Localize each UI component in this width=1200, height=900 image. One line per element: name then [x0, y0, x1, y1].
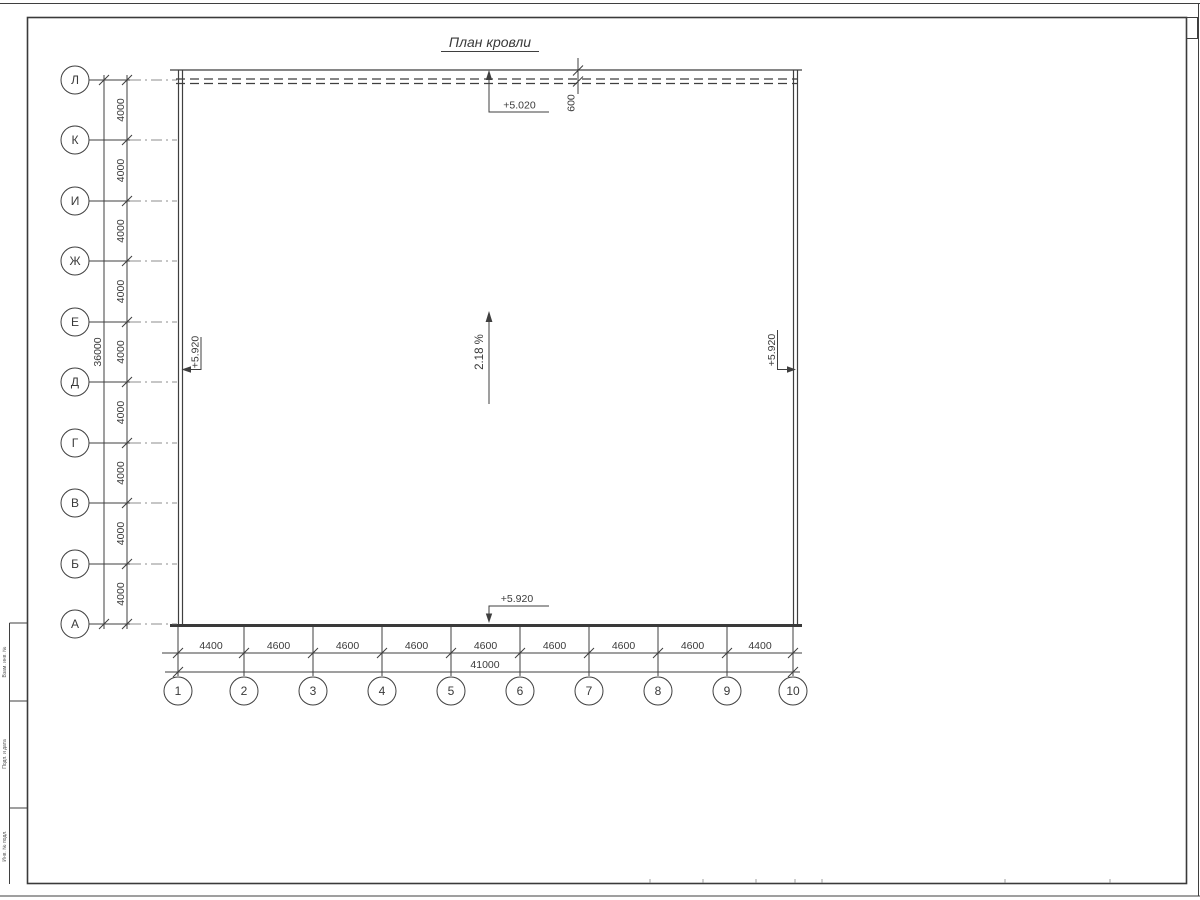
side-stamp-strip: Взам. инв. № Подп. и дата Инв. № подл.: [2, 623, 28, 884]
elevation-value: +5.920: [766, 334, 778, 367]
axis-bubble-label: Г: [72, 436, 79, 450]
frame-corner-box: [1187, 18, 1198, 39]
elevation-value: +5.920: [501, 593, 534, 605]
side-stamp-label: Взам. инв. №: [2, 647, 8, 678]
axis-bubble-label: 2: [241, 684, 248, 698]
row-axes: Л К И Ж Е Д Г В Б А 4000 4000 4000 4000 …: [61, 66, 177, 638]
elevation-value: +5.020: [503, 100, 536, 112]
axis-bubble-label: 9: [724, 684, 731, 698]
slope-arrow-icon: [486, 311, 493, 322]
col-axes: 1 2 3 4 5 6 7 8 9 10 4400 4600 4600 4600…: [162, 627, 807, 705]
row-dim-labels: 4000 4000 4000 4000 4000 4000 4000 4000 …: [92, 98, 127, 606]
arrow-right-icon: [787, 366, 796, 372]
roof-outline: [170, 70, 802, 627]
title-block-stubs: [650, 879, 1110, 883]
side-stamp-label: Подп. и дата: [2, 739, 8, 769]
dim-label: 4400: [748, 640, 772, 652]
axis-bubble-label: 7: [586, 684, 593, 698]
dim-label: 4000: [115, 522, 127, 546]
dim-label: 4600: [336, 640, 360, 652]
dim-label: 4600: [405, 640, 429, 652]
dim-label: 4000: [115, 401, 127, 425]
axis-bubble-label: 5: [448, 684, 455, 698]
axis-bubble-label: 3: [310, 684, 317, 698]
dim-total-label: 36000: [92, 337, 104, 366]
dim-label: 4600: [681, 640, 705, 652]
axis-bubble-label: 6: [517, 684, 524, 698]
arrow-up-icon: [486, 70, 492, 80]
axis-bubble-label: А: [71, 617, 79, 631]
elevation-mark-right: +5.920: [766, 330, 796, 373]
elevation-mark-left: +5.920: [182, 336, 202, 373]
row-axis-bubbles: Л К И Ж Е Д Г В Б А: [61, 66, 89, 638]
elevation-mark-bottom: +5.920: [486, 593, 549, 623]
axis-bubble-label: И: [71, 194, 80, 208]
roof-right-edge: [794, 70, 798, 627]
dim-label: 4600: [267, 640, 291, 652]
axis-bubble-label: 8: [655, 684, 662, 698]
axis-bubble-label: 4: [379, 684, 386, 698]
axis-bubble-label: Д: [71, 375, 79, 389]
dim-label: 4000: [115, 340, 127, 364]
axis-bubble-label: 10: [786, 684, 800, 698]
slope-annotation: 2.18 %: [474, 311, 492, 404]
dim-label: 4000: [115, 98, 127, 122]
dim-label: 4000: [115, 582, 127, 606]
sheet-frame: Взам. инв. № Подп. и дата Инв. № подл.: [0, 4, 1200, 897]
axis-bubble-label: Е: [71, 315, 79, 329]
axis-bubble-label: К: [72, 133, 79, 147]
axis-bubble-label: Б: [71, 557, 79, 571]
axis-bubble-label: 1: [175, 684, 182, 698]
row-axis-centerlines: [130, 80, 177, 624]
roof-plan-drawing: Взам. инв. № Подп. и дата Инв. № подл. П…: [0, 0, 1200, 900]
overhang-dimension: 600: [566, 58, 584, 112]
elevation-value: +5.920: [190, 336, 202, 369]
roof-left-edge: [179, 70, 183, 627]
dim-label: 600: [566, 94, 578, 112]
axis-bubble-label: В: [71, 496, 79, 510]
drawing-title: План кровли: [441, 34, 539, 52]
dim-label: 4000: [115, 219, 127, 243]
dim-label: 4600: [612, 640, 636, 652]
page-title: План кровли: [449, 34, 531, 50]
drawing-sheet: Взам. инв. № Подп. и дата Инв. № подл. П…: [0, 0, 1200, 900]
dim-label: 4000: [115, 159, 127, 183]
slope-value: 2.18 %: [474, 334, 486, 370]
dim-label: 4000: [115, 280, 127, 304]
col-axis-bubbles: 1 2 3 4 5 6 7 8 9 10: [164, 677, 807, 705]
dim-label: 4000: [115, 461, 127, 485]
dim-total-label: 41000: [470, 659, 499, 671]
dim-label: 4600: [543, 640, 567, 652]
dim-label: 4400: [199, 640, 223, 652]
axis-bubble-label: Ж: [69, 254, 80, 268]
col-dim-labels: 4400 4600 4600 4600 4600 4600 4600 4600 …: [199, 640, 772, 671]
arrow-down-icon: [486, 614, 492, 624]
axis-bubble-label: Л: [71, 73, 79, 87]
elevation-mark-top: +5.020: [486, 70, 549, 112]
side-stamp-label: Инв. № подл.: [2, 830, 8, 861]
dim-label: 4600: [474, 640, 498, 652]
